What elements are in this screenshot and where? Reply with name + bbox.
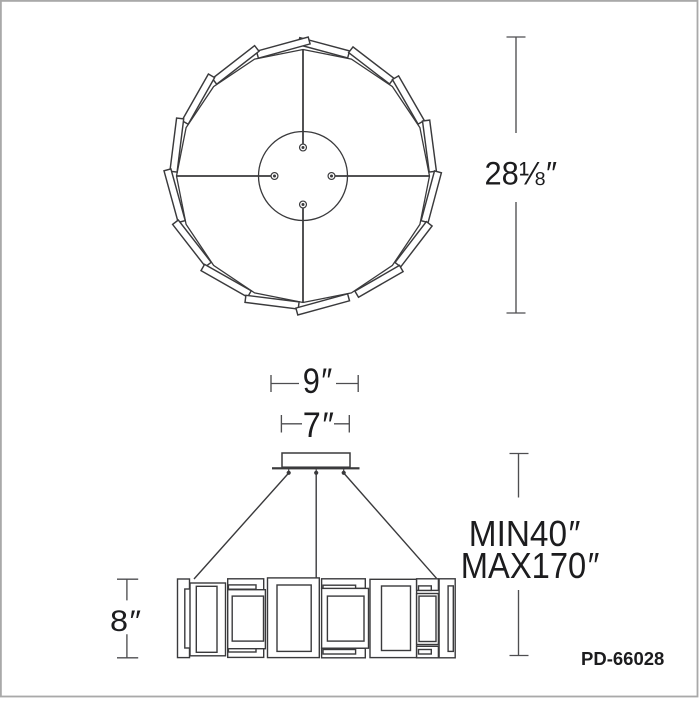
svg-text:PD-66028: PD-66028 <box>581 648 664 669</box>
svg-text:MAX170″: MAX170″ <box>461 545 599 586</box>
svg-text:28⅛″: 28⅛″ <box>485 155 557 191</box>
svg-text:8″: 8″ <box>110 605 141 638</box>
svg-text:9″: 9″ <box>303 362 332 401</box>
svg-text:7″: 7″ <box>303 406 334 445</box>
